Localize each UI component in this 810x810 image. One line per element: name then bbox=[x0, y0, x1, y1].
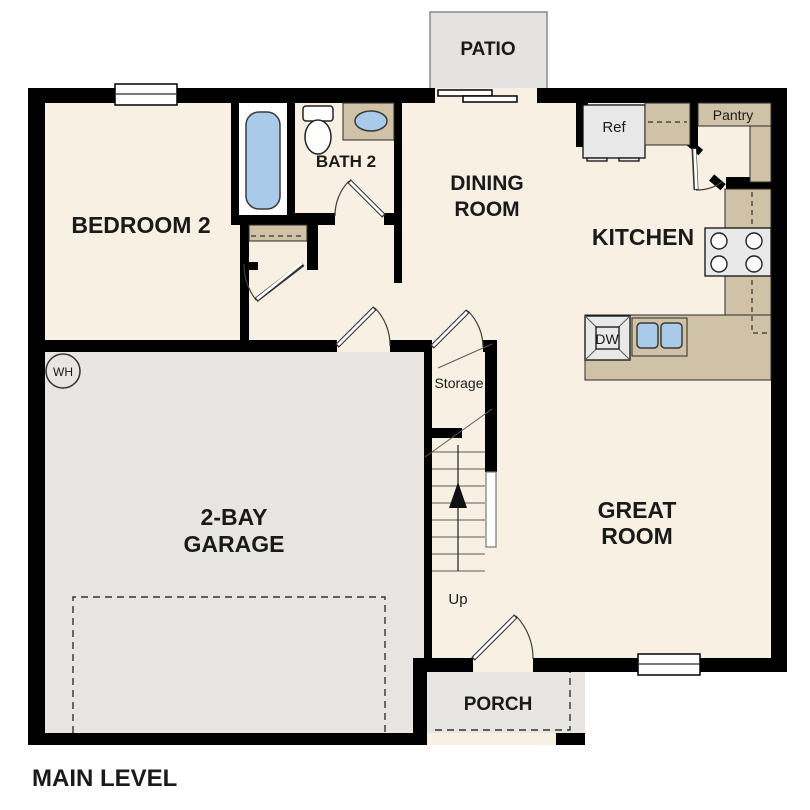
toilet bbox=[303, 106, 333, 154]
patio-label: PATIO bbox=[460, 39, 515, 60]
bath-sink bbox=[355, 111, 387, 131]
bath2-label: BATH 2 bbox=[316, 152, 376, 171]
floor-plan: WH Ref DW bbox=[0, 0, 810, 810]
page-title: MAIN LEVEL bbox=[32, 765, 177, 792]
kitchen-sink bbox=[632, 318, 687, 356]
kitchen-label: KITCHEN bbox=[592, 224, 694, 250]
floor-plan-canvas: WH Ref DW bbox=[0, 0, 810, 810]
svg-text:WH: WH bbox=[53, 365, 73, 379]
great-room-label-line1: GREAT bbox=[598, 497, 677, 523]
bathtub bbox=[246, 112, 280, 209]
porch-label: PORCH bbox=[464, 694, 533, 715]
stairs-up-label: Up bbox=[448, 591, 467, 608]
stair-handrail bbox=[486, 472, 496, 547]
stove bbox=[705, 228, 771, 276]
svg-text:DW: DW bbox=[595, 331, 619, 347]
garage-label-line2: GARAGE bbox=[184, 531, 285, 557]
dining-label-line1: DINING bbox=[450, 172, 524, 195]
dining-label-line2: ROOM bbox=[454, 198, 519, 221]
great-room-window bbox=[638, 654, 700, 675]
front-door-opening bbox=[473, 658, 533, 672]
bedroom2-window bbox=[115, 84, 177, 105]
svg-text:Ref: Ref bbox=[602, 119, 626, 136]
pantry-label: Pantry bbox=[713, 107, 753, 123]
dishwasher: DW bbox=[585, 316, 630, 360]
storage-label: Storage bbox=[434, 375, 483, 391]
refrigerator: Ref bbox=[583, 105, 645, 161]
bedroom2-label: BEDROOM 2 bbox=[71, 212, 210, 238]
closet-shelf bbox=[249, 225, 307, 241]
great-room-label-line2: ROOM bbox=[601, 523, 673, 549]
garage-label-line1: 2-BAY bbox=[201, 504, 268, 530]
